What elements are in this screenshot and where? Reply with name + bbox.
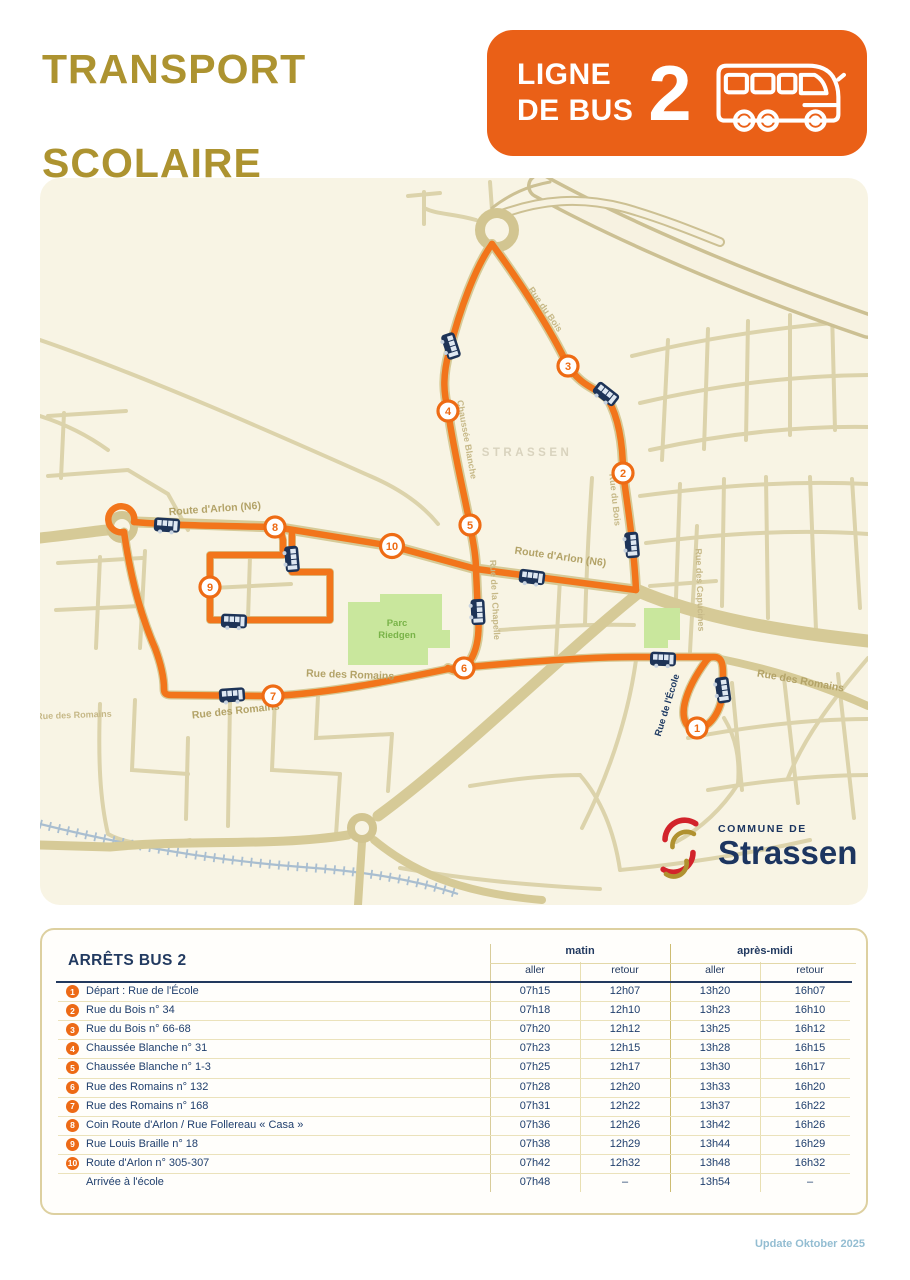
group-header-apres-midi: après-midi: [670, 945, 860, 957]
map-svg: Route d'Arlon (N6)Route d'Arlon (N6)Chau…: [40, 178, 868, 905]
time-cell: 16h29: [760, 1135, 860, 1154]
stop-marker-5: 5: [460, 515, 480, 535]
time-cell: 16h20: [760, 1078, 860, 1097]
time-cell: 07h23: [490, 1039, 580, 1058]
logo-strassen: Strassen: [718, 835, 857, 871]
bus-marker-icon: [219, 687, 246, 705]
svg-text:8: 8: [272, 522, 278, 534]
stop-name: Route d'Arlon n° 305-307: [86, 1154, 209, 1173]
street-label: STRASSEN: [482, 447, 573, 459]
svg-text:6: 6: [461, 663, 467, 675]
stop-marker-1: 1: [687, 718, 707, 738]
stop-number-badge: 10: [66, 1157, 79, 1170]
time-cell: 12h32: [580, 1154, 670, 1173]
time-cell: 07h15: [490, 982, 580, 1001]
table-row: 10Route d'Arlon n° 305-30707h4212h3213h4…: [42, 1154, 866, 1173]
street-label: Route d'Arlon (N6): [168, 500, 261, 518]
stop-number-badge: 2: [66, 1004, 79, 1017]
svg-text:3: 3: [565, 361, 571, 373]
stop-marker-10: 10: [381, 535, 404, 558]
bus-marker-icon: [650, 652, 677, 669]
table-row: Arrivée à l'école07h48–13h54–: [42, 1173, 866, 1192]
street-label: Parc: [387, 618, 408, 629]
stop-number-badge: 9: [66, 1138, 79, 1151]
stop-name: Rue Louis Braille n° 18: [86, 1135, 198, 1154]
bus-marker-icon: [468, 599, 485, 626]
time-cell: 12h07: [580, 982, 670, 1001]
stop-marker-3: 3: [558, 356, 578, 376]
time-cell: 07h20: [490, 1020, 580, 1039]
time-cell: 16h15: [760, 1039, 860, 1058]
update-note: Update Oktober 2025: [755, 1238, 865, 1250]
svg-text:9: 9: [207, 582, 213, 594]
svg-text:7: 7: [270, 691, 276, 703]
stop-name: Chaussée Blanche n° 1-3: [86, 1058, 211, 1077]
subheader-aller-am: aller: [490, 964, 580, 976]
time-cell: 13h42: [670, 1116, 760, 1135]
table-row: 6Rue des Romains n° 13207h2812h2013h3316…: [42, 1078, 866, 1097]
time-cell: 07h42: [490, 1154, 580, 1173]
line-number: 2: [635, 48, 705, 139]
time-cell: 13h25: [670, 1020, 760, 1039]
street-label: Riedgen: [378, 630, 416, 641]
stop-marker-8: 8: [265, 517, 285, 537]
time-cell: 12h20: [580, 1078, 670, 1097]
subheader-retour-pm: retour: [760, 964, 860, 976]
time-cell: 13h37: [670, 1097, 760, 1116]
time-cell: 07h31: [490, 1097, 580, 1116]
time-cell: 13h20: [670, 982, 760, 1001]
title-line1: TRANSPORT: [42, 46, 306, 92]
time-cell: 13h23: [670, 1001, 760, 1020]
bus-marker-icon: [282, 545, 300, 572]
bus-marker-icon: [622, 531, 640, 558]
timetable-title: ARRÊTS BUS 2: [68, 952, 186, 970]
stop-marker-4: 4: [438, 401, 458, 421]
table-row: 3Rue du Bois n° 66-6807h2012h1213h2516h1…: [42, 1020, 866, 1039]
table-row: 2Rue du Bois n° 3407h1812h1013h2316h10: [42, 1001, 866, 1020]
badge-text: LIGNE DE BUS: [517, 57, 633, 129]
time-cell: 13h54: [670, 1173, 760, 1192]
time-cell: 16h26: [760, 1116, 860, 1135]
time-cell: –: [580, 1173, 670, 1192]
time-cell: 13h30: [670, 1058, 760, 1077]
stop-marker-9: 9: [200, 577, 220, 597]
time-cell: 12h26: [580, 1116, 670, 1135]
bus-marker-icon: [153, 517, 180, 535]
time-cell: 13h48: [670, 1154, 760, 1173]
time-cell: 16h32: [760, 1154, 860, 1173]
stop-number-badge: 4: [66, 1042, 79, 1055]
time-cell: 13h33: [670, 1078, 760, 1097]
stop-name: Rue du Bois n° 66-68: [86, 1020, 191, 1039]
stop-name: Départ : Rue de l'École: [86, 982, 199, 1001]
street-label: Rue des Romains: [756, 667, 845, 694]
table-row: 4Chaussée Blanche n° 3107h2312h1513h2816…: [42, 1039, 866, 1058]
svg-text:2: 2: [620, 468, 626, 480]
page-title: TRANSPORT SCOLAIRE: [42, 46, 306, 187]
svg-text:4: 4: [445, 406, 452, 418]
stop-number-badge: 7: [66, 1100, 79, 1113]
route-map: Route d'Arlon (N6)Route d'Arlon (N6)Chau…: [40, 178, 868, 905]
time-cell: 12h22: [580, 1097, 670, 1116]
time-cell: 16h22: [760, 1097, 860, 1116]
stop-number-badge: 5: [66, 1061, 79, 1074]
time-cell: 12h17: [580, 1058, 670, 1077]
time-cell: 07h38: [490, 1135, 580, 1154]
subheader-aller-pm: aller: [670, 964, 760, 976]
stop-name: Rue des Romains n° 132: [86, 1078, 208, 1097]
badge-line1: LIGNE: [517, 57, 633, 93]
table-row: 9Rue Louis Braille n° 1807h3812h2913h441…: [42, 1135, 866, 1154]
stop-number-badge: 1: [66, 985, 79, 998]
bus-marker-icon: [221, 614, 248, 631]
stop-name: Chaussée Blanche n° 31: [86, 1039, 207, 1058]
stop-name: Rue du Bois n° 34: [86, 1001, 175, 1020]
time-cell: 16h10: [760, 1001, 860, 1020]
stop-number-badge: 8: [66, 1119, 79, 1132]
street-label: Rue de l'École: [653, 673, 682, 738]
stop-marker-6: 6: [454, 658, 474, 678]
stop-number-badge: 3: [66, 1023, 79, 1036]
stop-marker-2: 2: [613, 463, 633, 483]
time-cell: 16h17: [760, 1058, 860, 1077]
time-cell: 07h36: [490, 1116, 580, 1135]
street-label: Rue des Capucines: [694, 548, 707, 631]
divider: [490, 963, 856, 964]
time-cell: –: [760, 1173, 860, 1192]
time-cell: 13h28: [670, 1039, 760, 1058]
time-cell: 12h12: [580, 1020, 670, 1039]
time-cell: 12h15: [580, 1039, 670, 1058]
time-cell: 12h29: [580, 1135, 670, 1154]
time-cell: 16h12: [760, 1020, 860, 1039]
time-cell: 07h18: [490, 1001, 580, 1020]
bus-line-badge: LIGNE DE BUS 2: [487, 30, 867, 156]
table-row: 7Rue des Romains n° 16807h3112h2213h3716…: [42, 1097, 866, 1116]
bus-marker-icon: [518, 568, 546, 587]
group-header-matin: matin: [490, 945, 670, 957]
stop-marker-7: 7: [263, 686, 283, 706]
time-cell: 07h28: [490, 1078, 580, 1097]
stop-name: Rue des Romains n° 168: [86, 1097, 208, 1116]
time-cell: 13h44: [670, 1135, 760, 1154]
stop-name: Arrivée à l'école: [86, 1173, 164, 1192]
stop-number-badge: 6: [66, 1081, 79, 1094]
street-label: Rue des Romains: [306, 667, 395, 682]
subheader-retour-am: retour: [580, 964, 670, 976]
svg-text:5: 5: [467, 520, 473, 532]
badge-line2: DE BUS: [517, 93, 633, 129]
commune-logo: COMMUNE DE Strassen: [652, 810, 857, 884]
time-cell: 12h10: [580, 1001, 670, 1020]
bus-marker-icon: [712, 676, 731, 704]
timetable-card: ARRÊTS BUS 2 matin après-midi aller reto…: [40, 928, 868, 1215]
stop-name: Coin Route d'Arlon / Rue Follereau « Cas…: [86, 1116, 303, 1135]
table-row: 8Coin Route d'Arlon / Rue Follereau « Ca…: [42, 1116, 866, 1135]
svg-text:10: 10: [386, 541, 398, 553]
street-label: Route d'Arlon (N6): [514, 545, 607, 570]
table-row: 1Départ : Rue de l'École07h1512h0713h201…: [42, 982, 866, 1001]
time-cell: 07h25: [490, 1058, 580, 1077]
svg-text:1: 1: [694, 723, 700, 735]
time-cell: 07h48: [490, 1173, 580, 1192]
bus-icon: [709, 52, 847, 138]
park-small: [644, 608, 680, 648]
strassen-logo-mark: [652, 810, 706, 884]
table-row: 5Chaussée Blanche n° 1-307h2512h1713h301…: [42, 1058, 866, 1077]
time-cell: 16h07: [760, 982, 860, 1001]
